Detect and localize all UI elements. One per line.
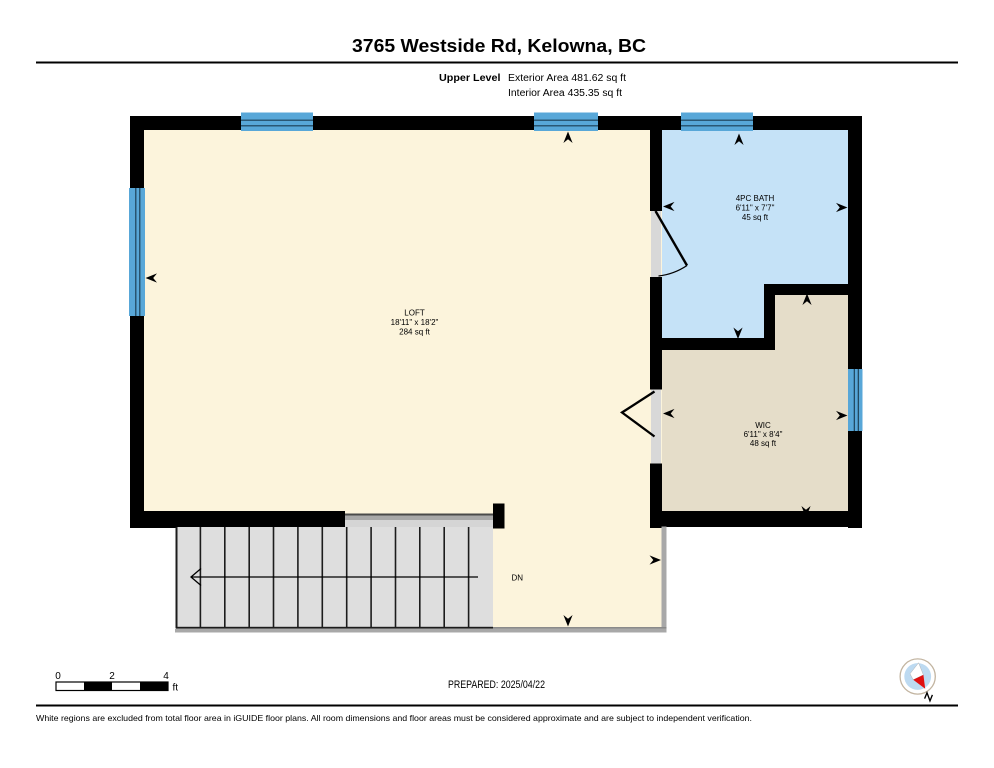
- svg-text:WIC: WIC: [755, 421, 771, 430]
- svg-text:4PC BATH: 4PC BATH: [736, 194, 775, 203]
- svg-text:6'11" x 7'7": 6'11" x 7'7": [736, 204, 775, 213]
- svg-text:ft: ft: [173, 683, 179, 694]
- svg-text:White regions are excluded fro: White regions are excluded from total fl…: [36, 713, 752, 723]
- svg-text:Exterior Area 481.62 sq ft: Exterior Area 481.62 sq ft: [508, 73, 626, 84]
- svg-text:0: 0: [55, 671, 61, 682]
- svg-text:4: 4: [163, 671, 169, 682]
- svg-text:2: 2: [109, 671, 115, 682]
- svg-text:6'11" x 8'4": 6'11" x 8'4": [744, 430, 783, 439]
- svg-text:PREPARED: 2025/04/22: PREPARED: 2025/04/22: [448, 679, 545, 691]
- svg-text:48 sq ft: 48 sq ft: [750, 439, 777, 448]
- svg-text:LOFT: LOFT: [404, 309, 425, 318]
- svg-text:284 sq ft: 284 sq ft: [399, 328, 430, 337]
- svg-text:45 sq ft: 45 sq ft: [742, 213, 769, 222]
- svg-text:Upper Level: Upper Level: [439, 73, 501, 84]
- svg-text:Interior Area 435.35 sq ft: Interior Area 435.35 sq ft: [508, 88, 622, 99]
- svg-text:DN: DN: [512, 574, 524, 583]
- svg-text:3765 Westside Rd, Kelowna, BC: 3765 Westside Rd, Kelowna, BC: [352, 35, 646, 56]
- svg-text:18'11" x 18'2": 18'11" x 18'2": [391, 318, 439, 327]
